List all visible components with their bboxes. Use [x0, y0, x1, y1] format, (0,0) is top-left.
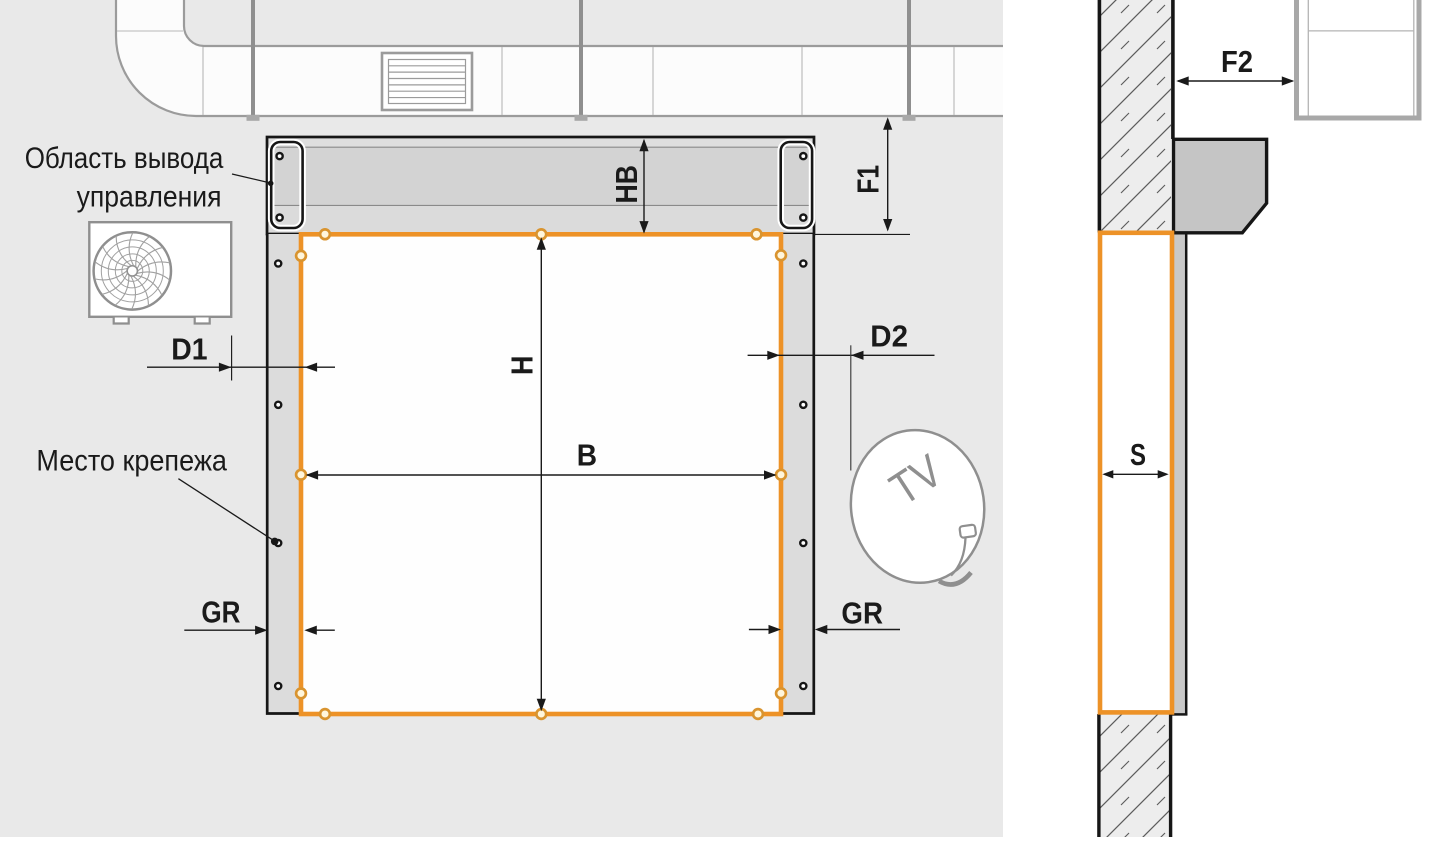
svg-text:Область вывода: Область вывода	[25, 142, 224, 175]
svg-text:D2: D2	[870, 318, 908, 353]
svg-text:S: S	[1130, 437, 1146, 472]
svg-text:D1: D1	[171, 332, 207, 367]
svg-text:B: B	[577, 438, 597, 473]
svg-text:F1: F1	[850, 165, 885, 194]
svg-text:GR: GR	[201, 594, 240, 629]
svg-text:GR: GR	[841, 595, 883, 630]
svg-text:Место крепежа: Место крепежа	[36, 445, 227, 478]
svg-text:HB: HB	[609, 165, 644, 204]
svg-text:F2: F2	[1221, 44, 1253, 79]
svg-text:управления: управления	[77, 180, 222, 213]
svg-text:H: H	[504, 356, 539, 376]
